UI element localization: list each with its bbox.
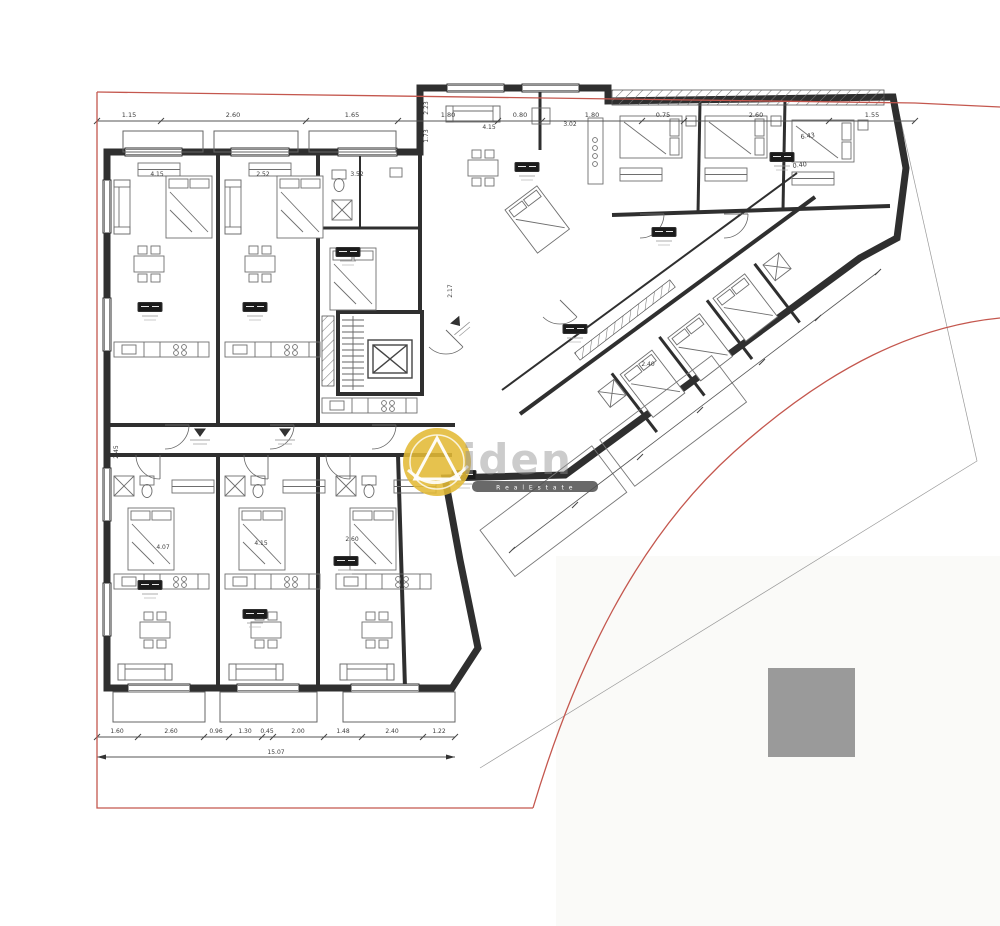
dim-label: 2.45 bbox=[113, 445, 120, 459]
dim-label: 1.22 bbox=[432, 728, 446, 735]
dim-label: 2.60 bbox=[345, 536, 359, 543]
floorplan-svg: 1.15 2.60 1.65 1.80 0.80 1.80 0.75 2.60 … bbox=[0, 0, 1000, 926]
dim-label: 2.17 bbox=[447, 284, 454, 298]
dim-label: 0.75 bbox=[656, 111, 670, 119]
watermark-tagline-text: R e a l E s t a t e bbox=[496, 485, 574, 492]
gray-block bbox=[768, 668, 855, 757]
dim-label: 4.15 bbox=[482, 124, 496, 131]
watermark-brand-text: iden bbox=[462, 435, 573, 484]
dim-label: 0.80 bbox=[513, 111, 527, 119]
dim-label: 1.65 bbox=[345, 111, 359, 119]
dim-label: 0.45 bbox=[260, 728, 274, 735]
dim-label: 0.96 bbox=[209, 728, 223, 735]
dim-label: 3.02 bbox=[563, 121, 577, 128]
dim-label: 2.40 bbox=[385, 728, 399, 735]
dim-total-label: 15.07 bbox=[267, 749, 284, 756]
dim-label: 4.15 bbox=[254, 540, 268, 547]
watermark-logo-icon bbox=[403, 428, 471, 496]
dim-label: 2.52 bbox=[256, 171, 270, 178]
dimension-bottom: 1.60 2.60 0.96 1.30 0.45 2.00 1.48 2.40 … bbox=[94, 728, 458, 760]
dim-label: 2.23 bbox=[423, 101, 430, 115]
dim-label: 1.55 bbox=[865, 111, 879, 119]
dim-label: 2.60 bbox=[749, 111, 763, 119]
dim-label: 1.15 bbox=[122, 111, 136, 119]
floorplan-image: 1.15 2.60 1.65 1.80 0.80 1.80 0.75 2.60 … bbox=[0, 0, 1000, 926]
dim-label: 2.60 bbox=[164, 728, 178, 735]
dim-label: 1.73 bbox=[423, 129, 430, 143]
dim-label: 1.30 bbox=[238, 728, 252, 735]
watermark: iden R e a l E s t a t e bbox=[403, 428, 598, 496]
dim-label: 4.07 bbox=[156, 544, 170, 551]
dim-label: 1.48 bbox=[336, 728, 350, 735]
staircase bbox=[322, 312, 422, 394]
dim-label: 1.80 bbox=[585, 111, 599, 119]
dim-label: 2.40 bbox=[641, 361, 655, 368]
dim-label: 1.80 bbox=[441, 111, 455, 119]
dim-label: 2.60 bbox=[226, 111, 240, 119]
dim-label: 4.15 bbox=[150, 171, 164, 178]
balcony-hatch-band bbox=[612, 90, 884, 105]
dim-label: 2.00 bbox=[291, 728, 305, 735]
dim-label: 3.52 bbox=[350, 171, 364, 178]
dim-label: 1.60 bbox=[110, 728, 124, 735]
